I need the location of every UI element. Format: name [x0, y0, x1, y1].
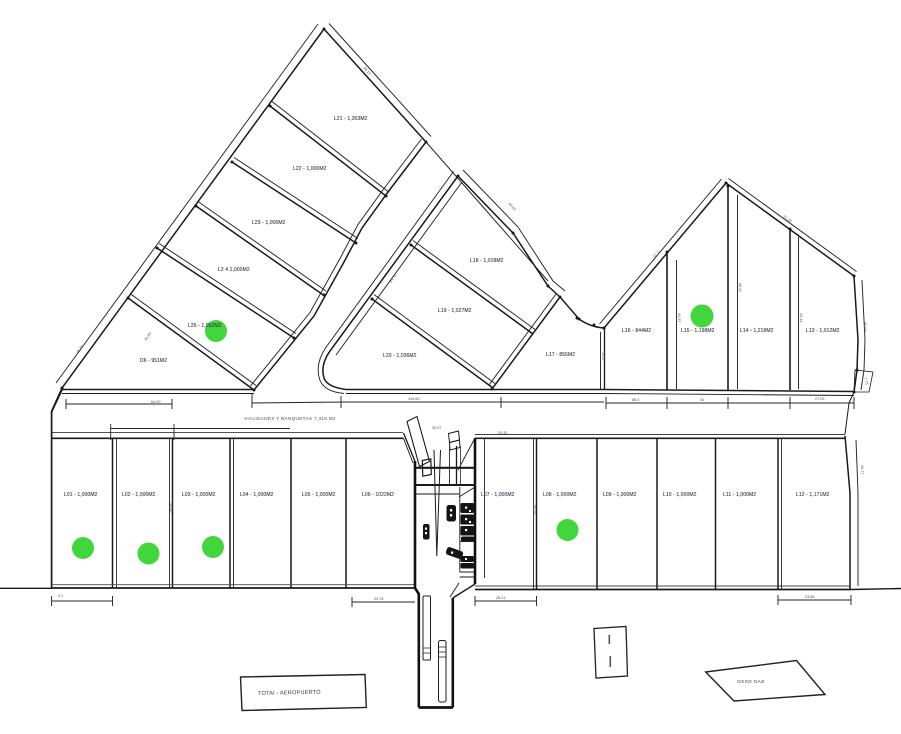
- svg-text:88.3: 88.3: [632, 398, 639, 402]
- svg-text:L14 - 1,218M2: L14 - 1,218M2: [740, 328, 774, 334]
- svg-text:24.78: 24.78: [389, 274, 398, 284]
- svg-text:50.00: 50.00: [169, 503, 173, 513]
- svg-text:7.75: 7.75: [863, 377, 869, 385]
- svg-text:23.78: 23.78: [374, 597, 384, 601]
- svg-text:36.10: 36.10: [362, 66, 371, 76]
- svg-text:44.97: 44.97: [677, 313, 681, 323]
- svg-text:L03 - 1,000M2: L03 - 1,000M2: [182, 492, 216, 498]
- svg-text:60.31: 60.31: [738, 283, 742, 293]
- svg-text:L05 - 1,000M2: L05 - 1,000M2: [302, 492, 336, 498]
- svg-text:20.32: 20.32: [498, 431, 508, 435]
- svg-text:L09 - 1,000M2: L09 - 1,000M2: [603, 492, 637, 498]
- svg-text:L19 - 1,027M2: L19 - 1,027M2: [438, 308, 472, 314]
- svg-text:45.73: 45.73: [76, 345, 85, 355]
- svg-text:44.62: 44.62: [507, 202, 516, 212]
- svg-text:L23 - 1,000M2: L23 - 1,000M2: [252, 220, 286, 226]
- svg-text:19.5: 19.5: [601, 352, 605, 359]
- svg-text:L11 - 1,000M2: L11 - 1,000M2: [723, 492, 756, 498]
- svg-text:OXXO GAS: OXXO GAS: [737, 679, 765, 685]
- svg-text:L07 - 1,000M2: L07 - 1,000M2: [481, 492, 515, 498]
- svg-text:L2 4 1,000M2: L2 4 1,000M2: [218, 267, 250, 273]
- svg-text:41.80: 41.80: [144, 332, 153, 342]
- svg-text:L20 - 1,036M2: L20 - 1,036M2: [383, 353, 417, 359]
- svg-text:44.44: 44.44: [799, 313, 803, 323]
- svg-text:104.60: 104.60: [408, 397, 420, 401]
- svg-text:2.1: 2.1: [58, 594, 63, 598]
- svg-text:28.21: 28.21: [496, 596, 506, 600]
- svg-text:46.77: 46.77: [860, 465, 864, 475]
- svg-text:27.03: 27.03: [815, 397, 825, 401]
- svg-text:31.2: 31.2: [653, 250, 661, 258]
- svg-text:VIALIDADES Y BANQUETAS 7,315 M: VIALIDADES Y BANQUETAS 7,315 M2: [244, 416, 336, 421]
- svg-text:23.86: 23.86: [805, 595, 815, 599]
- svg-text:40.06: 40.06: [863, 322, 867, 332]
- svg-text:L13 - 1,012M2: L13 - 1,012M2: [806, 328, 840, 334]
- svg-text:L17 - 855M2: L17 - 855M2: [546, 352, 575, 358]
- svg-text:L18 - 1,018M2: L18 - 1,018M2: [470, 258, 504, 264]
- svg-text:L10 - 1,000M2: L10 - 1,000M2: [663, 492, 697, 498]
- svg-text:50.00: 50.00: [532, 505, 536, 515]
- svg-text:L01 - 1,000M2: L01 - 1,000M2: [64, 492, 98, 498]
- svg-text:L06 - 1022M2: L06 - 1022M2: [362, 492, 394, 498]
- svg-text:TOTAl - AEROPUERTO: TOTAl - AEROPUERTO: [258, 690, 321, 697]
- svg-text:L02 - 1,000M2: L02 - 1,000M2: [122, 492, 156, 498]
- svg-text:L25 - 1,052M2: L25 - 1,052M2: [188, 323, 222, 329]
- svg-text:40: 40: [700, 398, 704, 402]
- svg-text:L15 - 1,198M2: L15 - 1,198M2: [681, 328, 715, 334]
- svg-text:L12 - 1,171M2: L12 - 1,171M2: [796, 492, 830, 498]
- svg-text:L21 - 1,303M2: L21 - 1,303M2: [334, 116, 368, 122]
- svg-text:D6 - 951M2: D6 - 951M2: [140, 358, 167, 364]
- svg-text:L08 - 1,000M2: L08 - 1,000M2: [543, 492, 577, 498]
- svg-text:30.07: 30.07: [432, 426, 442, 430]
- svg-text:L04 - 1,000M2: L04 - 1,000M2: [240, 492, 274, 498]
- svg-text:L16 - 844M2: L16 - 844M2: [622, 328, 651, 334]
- svg-text:64.00: 64.00: [151, 400, 161, 404]
- svg-text:L22 - 1,000M2: L22 - 1,000M2: [293, 166, 327, 172]
